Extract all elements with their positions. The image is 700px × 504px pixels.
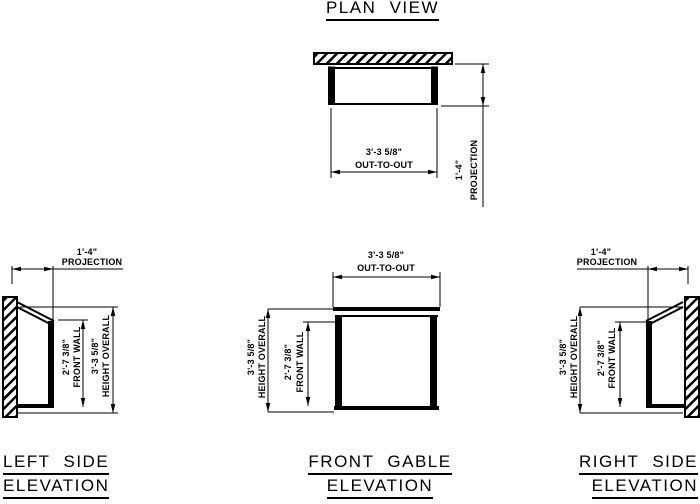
- left-height-overall-label: HEIGHT OVERALL: [101, 315, 111, 397]
- front-height-overall-value: 3'-3 5/8": [246, 339, 256, 375]
- plan-left-wall: [328, 67, 335, 106]
- right-front-wall-label: FRONT WALL: [607, 328, 617, 389]
- front-title-line1: FRONT GABLE: [308, 452, 451, 475]
- left-projection-value: 1'-4": [77, 247, 97, 257]
- arrow-down-icon: [266, 403, 271, 412]
- plan-right-wall: [431, 67, 438, 106]
- arrow-right-icon: [428, 170, 437, 175]
- arrow-down-icon: [81, 398, 86, 407]
- front-elev-roof: [333, 307, 440, 311]
- arrow-left-icon: [12, 267, 21, 272]
- arrow-up-icon: [306, 322, 311, 331]
- left-height-overall-value: 3'-3 5/8": [90, 338, 100, 374]
- left-front-wall-value: 2'-7 3/8": [61, 339, 71, 375]
- arrow-right-icon: [44, 267, 53, 272]
- right-title-line1: RIGHT SIDE: [579, 452, 698, 475]
- front-gable-elevation-drawing: [266, 272, 440, 412]
- arrow-up-icon: [618, 322, 623, 331]
- right-front-wall-value: 2'-7 3/8": [596, 340, 606, 376]
- left-side-elevation-title: LEFT SIDE ELEVATION: [3, 452, 109, 500]
- left-title-line1: LEFT SIDE: [3, 452, 109, 475]
- arrow-down-icon: [578, 404, 583, 413]
- arrow-left-icon: [648, 267, 657, 272]
- plan-view-drawing: [328, 64, 489, 207]
- right-title-line2: ELEVATION: [592, 476, 698, 499]
- right-elev-front-wall: [646, 321, 652, 406]
- front-out-to-out-label: OUT-TO-OUT: [357, 263, 415, 273]
- front-elev-right-wall: [430, 317, 437, 407]
- arrow-up-icon: [111, 307, 116, 316]
- left-front-wall-label: FRONT WALL: [72, 327, 82, 388]
- arrow-down-icon: [111, 404, 116, 413]
- front-elev-left-wall: [335, 317, 342, 407]
- plan-projection-label: PROJECTION: [469, 140, 479, 201]
- left-projection-label: PROJECTION: [62, 257, 123, 267]
- arrow-right-icon: [679, 267, 688, 272]
- front-elev-floor: [334, 406, 439, 410]
- plan-projection-value: 1'-4": [454, 160, 464, 180]
- plan-out-to-out-value: 3'-3 5/8": [366, 147, 402, 157]
- front-title-line2: ELEVATION: [327, 476, 433, 499]
- right-side-elevation-drawing: [577, 266, 688, 413]
- right-elev-floor: [646, 404, 684, 408]
- arrow-up-icon: [578, 307, 583, 316]
- drawing-sheet: PLAN VIEW 3'-3 5/8" OUT-TO-OUT 1'-4" PRO…: [0, 0, 700, 504]
- right-projection-label: PROJECTION: [577, 257, 638, 267]
- right-height-overall-value: 3'-3 5/8": [558, 339, 568, 375]
- arrow-left-icon: [331, 170, 340, 175]
- arrow-down-icon: [618, 398, 623, 407]
- front-gable-elevation-title: FRONT GABLE ELEVATION: [285, 452, 475, 500]
- plan-out-to-out-label: OUT-TO-OUT: [355, 160, 413, 170]
- arrow-down-icon: [306, 397, 311, 406]
- left-elev-floor: [16, 404, 54, 408]
- arrow-left-icon: [333, 275, 342, 280]
- front-out-to-out-value: 3'-3 5/8": [368, 250, 404, 260]
- arrow-down-icon: [481, 97, 486, 106]
- right-projection-value: 1'-4": [591, 247, 611, 257]
- plan-view-title: PLAN VIEW: [305, 0, 460, 22]
- arrow-right-icon: [431, 275, 440, 280]
- left-elev-front-wall: [48, 321, 54, 406]
- right-side-elevation-title: RIGHT SIDE ELEVATION: [553, 452, 698, 500]
- front-front-wall-label: FRONT WALL: [295, 332, 305, 393]
- plan-title-text: PLAN VIEW: [326, 0, 439, 21]
- right-height-overall-label: HEIGHT OVERALL: [569, 316, 579, 398]
- front-height-overall-label: HEIGHT OVERALL: [257, 316, 267, 398]
- arrow-up-icon: [481, 64, 486, 73]
- left-title-line2: ELEVATION: [3, 476, 109, 499]
- front-front-wall-value: 2'-7 3/8": [283, 344, 293, 380]
